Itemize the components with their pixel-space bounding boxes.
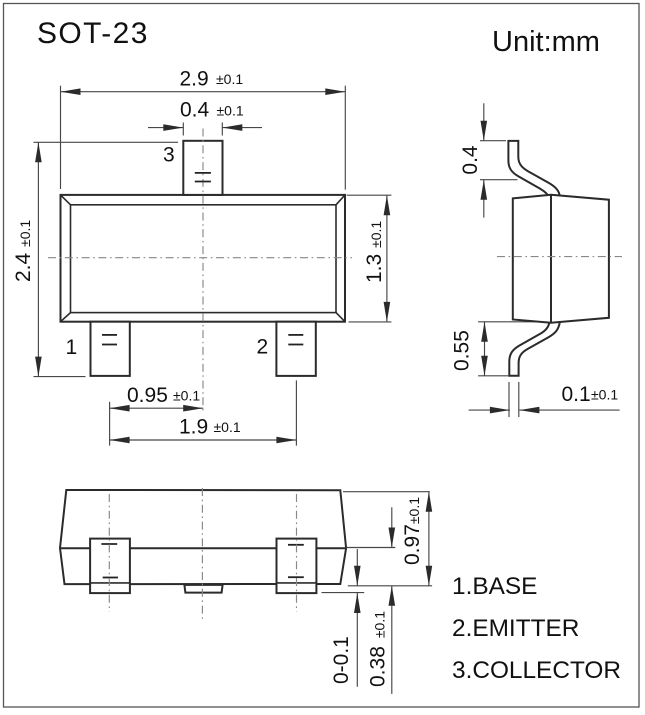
svg-text:SOT-23: SOT-23 (37, 17, 149, 50)
svg-text:3.COLLECTOR: 3.COLLECTOR (452, 657, 621, 684)
svg-text:1.9: 1.9 (179, 416, 208, 439)
svg-text:±0.1: ±0.1 (591, 387, 618, 403)
svg-text:0-0.1: 0-0.1 (330, 636, 353, 684)
svg-text:0.4: 0.4 (180, 99, 210, 122)
svg-text:3: 3 (163, 144, 175, 167)
svg-text:0.4: 0.4 (459, 145, 482, 175)
svg-text:0.95: 0.95 (127, 384, 168, 407)
svg-text:±0.1: ±0.1 (173, 388, 200, 404)
svg-text:±0.1: ±0.1 (217, 103, 244, 119)
svg-text:±0.1: ±0.1 (216, 71, 243, 87)
svg-text:0.1: 0.1 (562, 383, 591, 406)
svg-text:2.9: 2.9 (180, 68, 209, 91)
svg-text:Unit:mm: Unit:mm (492, 26, 600, 58)
svg-text:±0.1: ±0.1 (214, 419, 241, 435)
svg-text:0.55: 0.55 (451, 330, 474, 371)
svg-text:2.EMITTER: 2.EMITTER (452, 615, 579, 642)
svg-text:2: 2 (257, 336, 269, 359)
svg-text:1.BASE: 1.BASE (452, 573, 537, 600)
svg-text:1: 1 (66, 336, 78, 359)
